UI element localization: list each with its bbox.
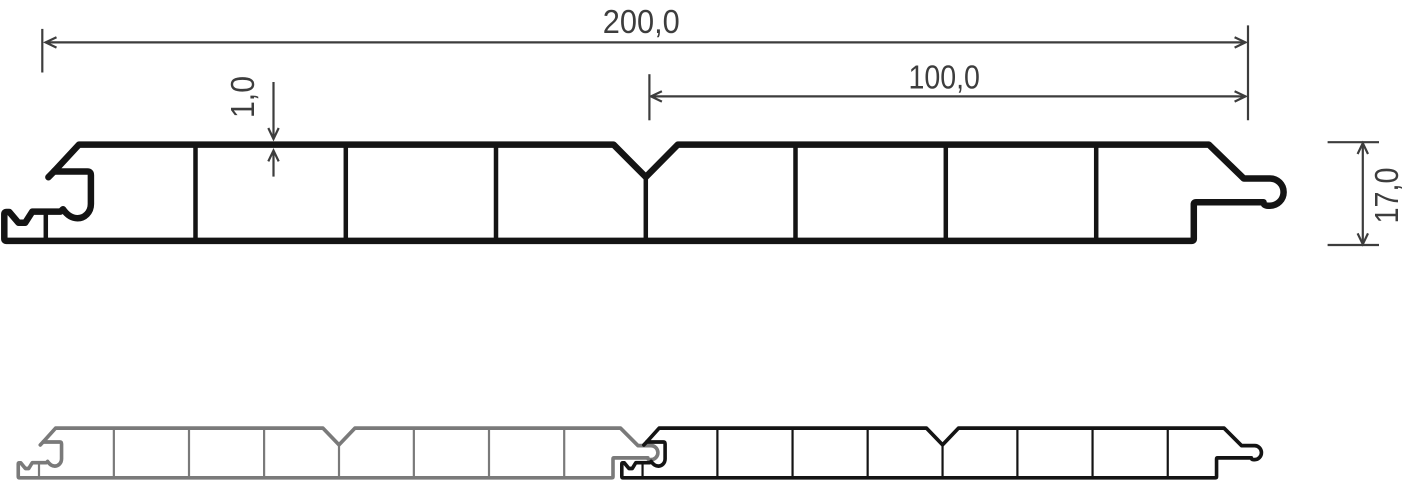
svg-text:200,0: 200,0 — [603, 3, 680, 40]
svg-text:1,0: 1,0 — [224, 76, 261, 118]
svg-text:17,0: 17,0 — [1368, 168, 1402, 224]
svg-text:100,0: 100,0 — [908, 59, 980, 96]
